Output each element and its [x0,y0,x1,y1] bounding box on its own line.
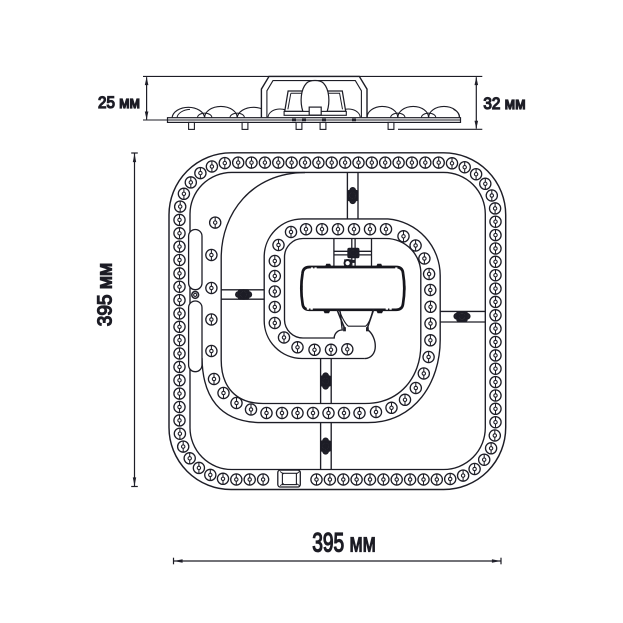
svg-text:395 мм: 395 мм [95,263,117,326]
svg-text:25 мм: 25 мм [98,93,140,112]
svg-text:32 мм: 32 мм [483,94,525,113]
svg-text:395 мм: 395 мм [312,528,376,558]
